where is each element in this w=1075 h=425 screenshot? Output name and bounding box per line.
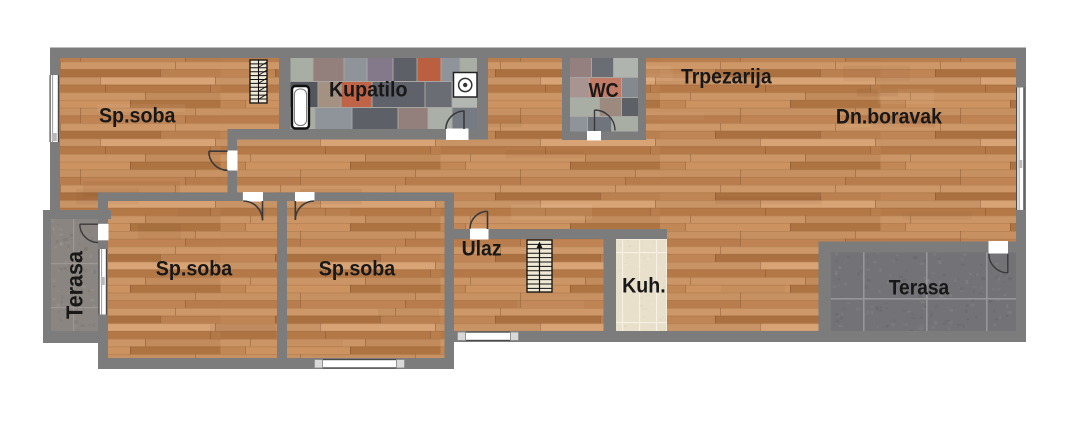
- svg-text:Sp.soba: Sp.soba: [319, 257, 396, 280]
- svg-text:Dn.boravak: Dn.boravak: [836, 105, 942, 128]
- svg-text:Terasa: Terasa: [889, 276, 950, 299]
- svg-text:Terasa: Terasa: [62, 251, 88, 319]
- svg-text:Sp.soba: Sp.soba: [99, 105, 176, 128]
- svg-text:Kuh.: Kuh.: [622, 275, 666, 298]
- svg-text:Kupatilo: Kupatilo: [329, 78, 408, 101]
- svg-text:WC: WC: [589, 80, 619, 102]
- svg-text:Sp.soba: Sp.soba: [156, 257, 233, 280]
- svg-text:Trpezarija: Trpezarija: [681, 66, 772, 89]
- svg-text:Ulaz: Ulaz: [462, 238, 502, 261]
